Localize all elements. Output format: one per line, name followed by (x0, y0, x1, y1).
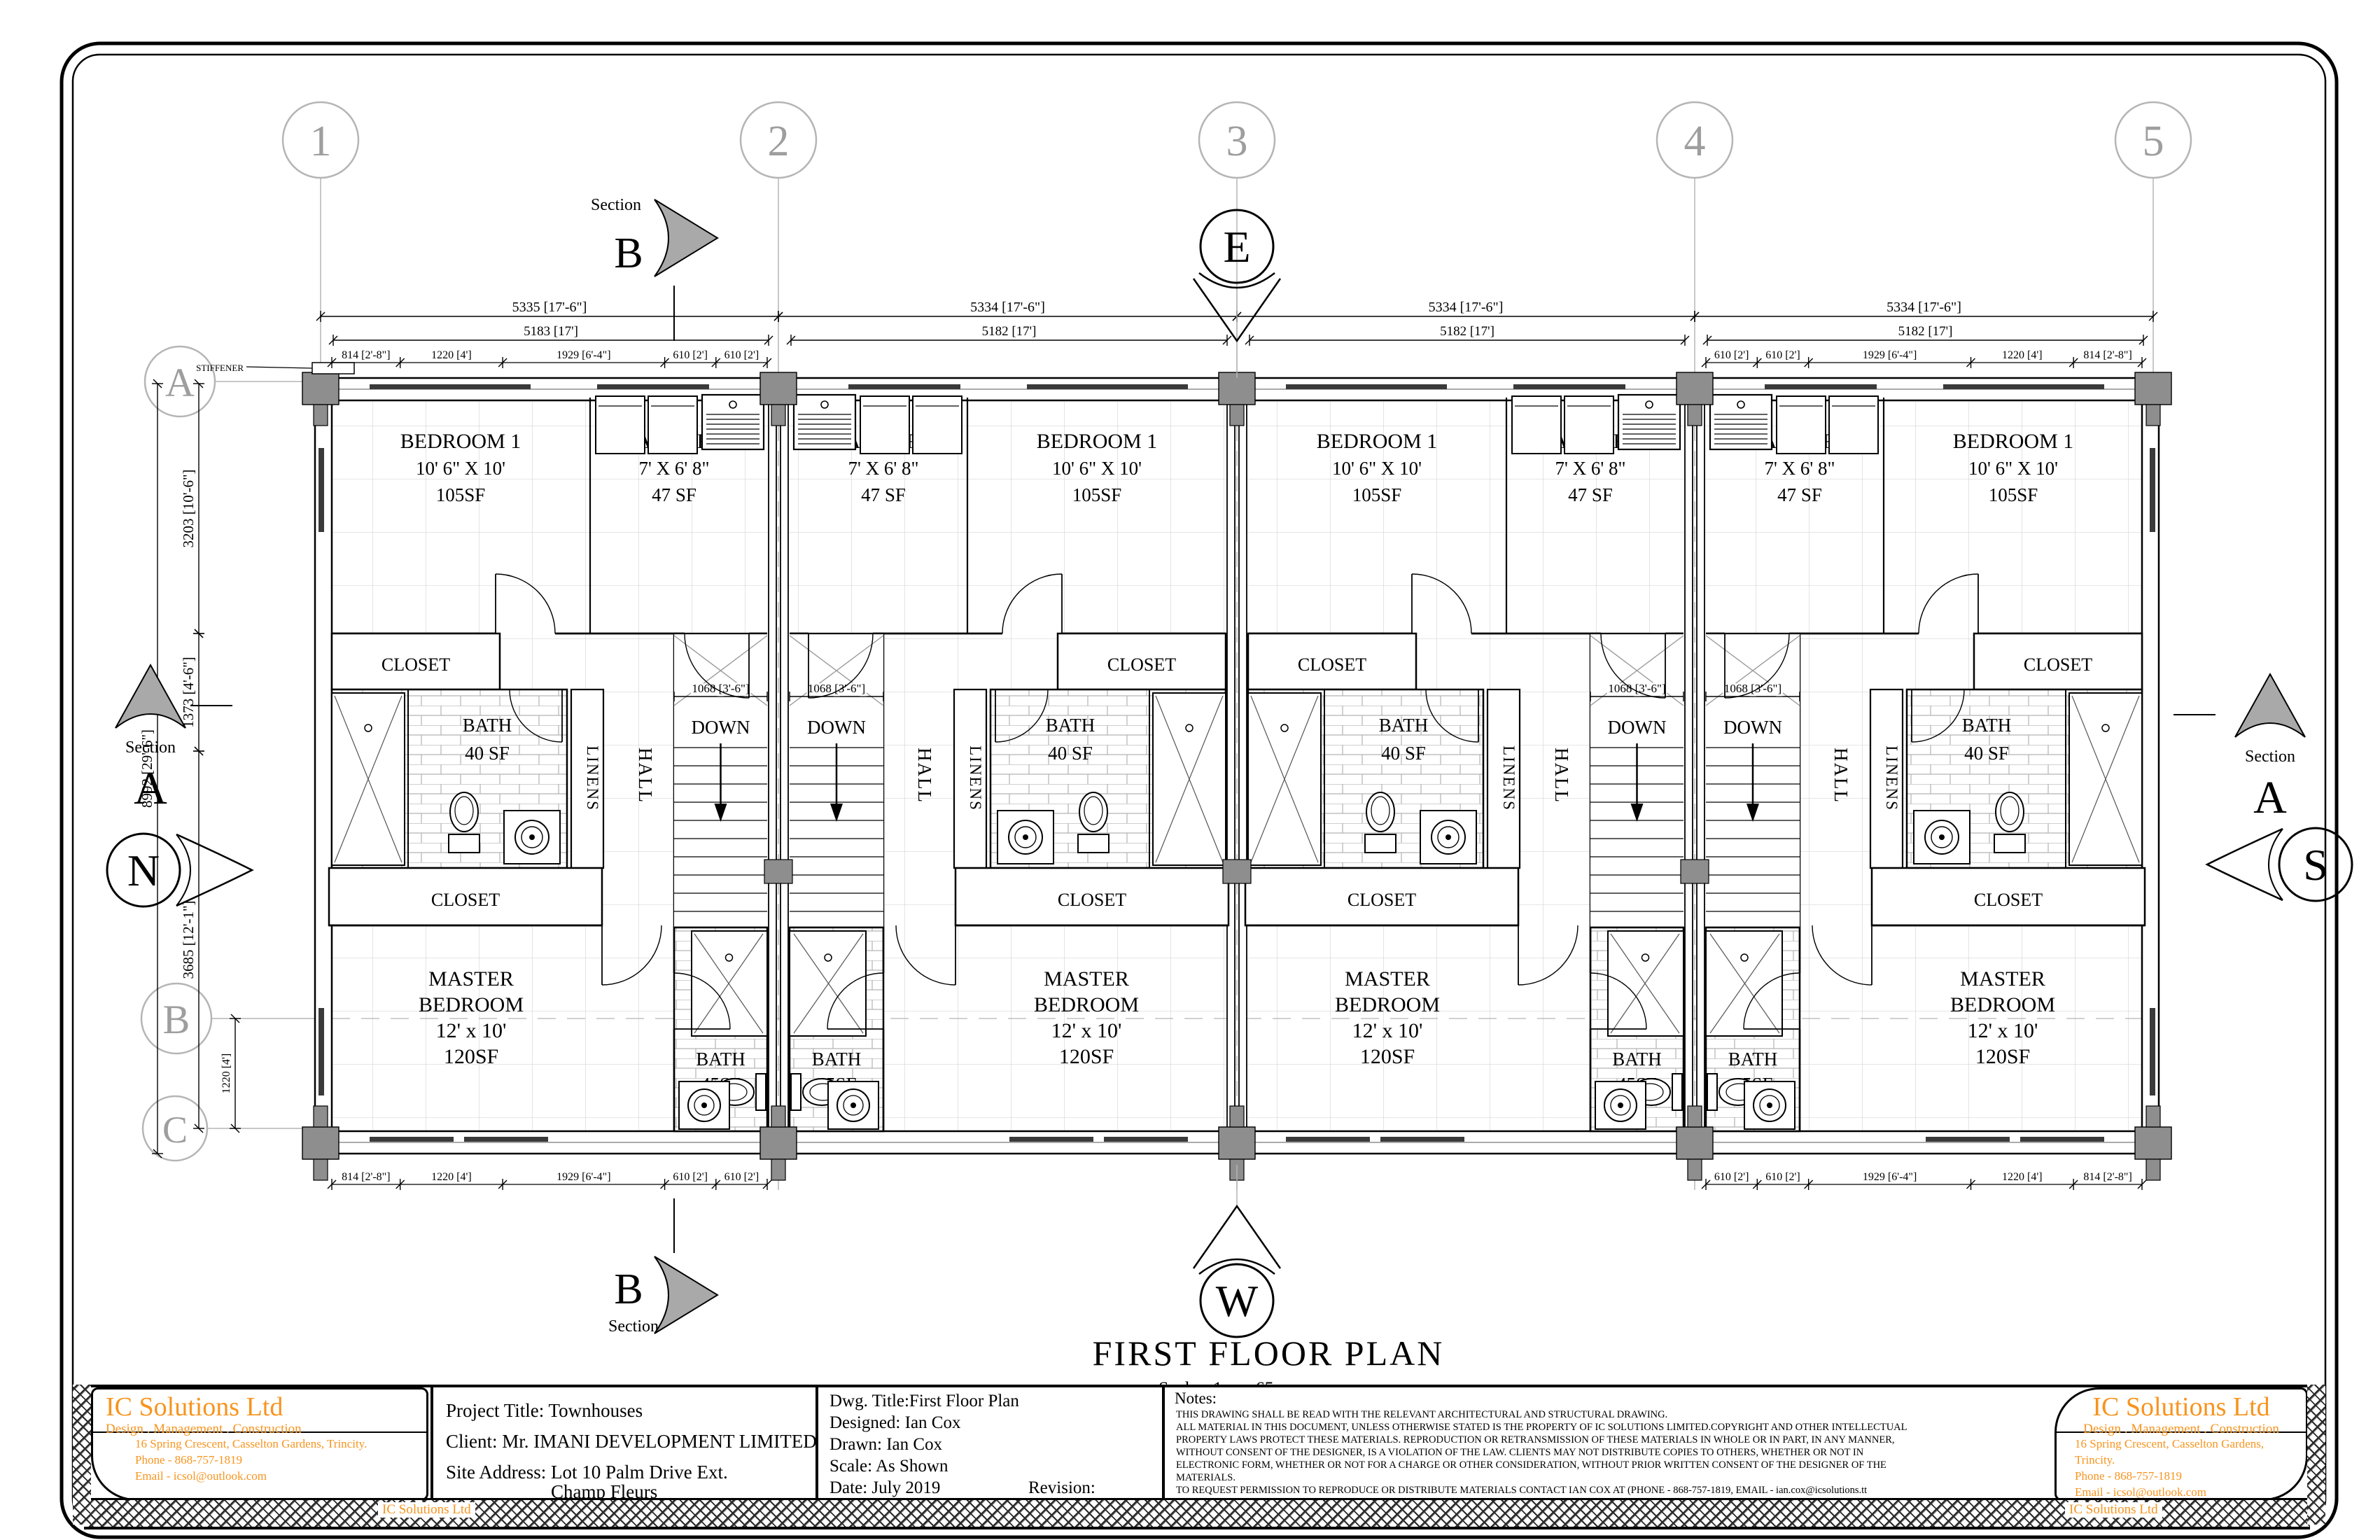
column-bottom-4-stub1 (1688, 1159, 1702, 1180)
column-top-3-stub0 (1230, 405, 1244, 426)
u4-toilet-bowl (1996, 792, 2024, 832)
u2-toilet-bowl (1079, 792, 1107, 832)
u3-closet-lower-label: CLOSET (1347, 890, 1416, 910)
column-top-5 (2135, 372, 2171, 405)
compass-east-letter: E (1223, 222, 1250, 272)
notes-heading: Notes: (1175, 1389, 1217, 1408)
u3-master-label-0: MASTER (1345, 967, 1430, 990)
u3-laundry-sink (1618, 395, 1680, 449)
u2-dryer (860, 396, 909, 454)
u1-closet-lower-label: CLOSET (431, 890, 500, 910)
section-b-bottom-label: Section (608, 1317, 659, 1336)
dim-seg-bottom-left-text0: 814 [2'-8"] (342, 1171, 390, 1183)
u1-bedroom1-label-1: 10' 6" X 10' (416, 458, 505, 479)
u2-bedroom1-label-0: BEDROOM 1 (1037, 430, 1158, 453)
u4-bath45-toilet-tank (1707, 1074, 1717, 1110)
u3-window-master-2 (1380, 1137, 1464, 1142)
column-top-4-stub0 (1688, 405, 1702, 426)
u2-sink-drain (1023, 834, 1028, 840)
dim-bay-overall-3-text: 5334 [17'-6"] (1429, 300, 1504, 315)
u1-bath45-toilet-tank (756, 1074, 766, 1110)
u4-bath45-sink-drain (1767, 1102, 1772, 1108)
compass-west-arc (1199, 1259, 1275, 1274)
dim-seg-bottom-left-text3: 610 [2'] (673, 1171, 708, 1183)
dim-bay-overall-2-text: 5334 [17'-6"] (970, 300, 1045, 315)
u1-bath45-label: BATH (696, 1049, 745, 1070)
section-a-right-letter: A (2253, 772, 2287, 823)
company-box-right: IC Solutions Ltd Design . Management . C… (2054, 1387, 2308, 1501)
project-title: Project Title: Townhouses (446, 1400, 643, 1422)
u4-linens-label: LINENS (1883, 745, 1900, 811)
u3-washer (1512, 396, 1561, 454)
u1-master-label-2: 12' x 10' (436, 1019, 507, 1042)
u3-window-master-1 (1286, 1137, 1370, 1142)
grid-bubble-label-1: 1 (310, 118, 332, 165)
notes-line-3: PROPERTY LAWS PROTECT THESE MATERIALS. R… (1176, 1434, 1895, 1447)
column-bottom-1-stub1 (314, 1159, 328, 1180)
u2-bath40-area: 40 SF (1048, 743, 1093, 764)
column-top-2-stub0 (771, 405, 785, 426)
compass-south-letter: S (2303, 840, 2328, 890)
u1-sink-drain (529, 834, 535, 840)
company-box-left: IC Solutions Ltd Design . Management . C… (91, 1387, 428, 1501)
section-a-right-label: Section (2245, 748, 2295, 766)
dwg-designed: Designed: Ian Cox (829, 1413, 960, 1433)
company-header-right: IC Solutions Ltd Design . Management . C… (2057, 1389, 2306, 1433)
dim-seg-top-right-text0: 610 [2'] (1714, 349, 1749, 361)
u2-laundry-label-2: 47 SF (861, 484, 906, 505)
company-contact-right: 16 Spring Crescent, Casselton Gardens, T… (2057, 1433, 2306, 1501)
u2-laundry-label-1: 7' X 6' 8" (848, 458, 919, 479)
hatch-band-right (2307, 1385, 2325, 1525)
column-mid-2 (764, 860, 792, 883)
u3-master-label-3: 120SF (1360, 1045, 1415, 1068)
dim-bay-inner-3-text: 5182 [17'] (1440, 324, 1494, 339)
u3-bedroom1-label-0: BEDROOM 1 (1317, 430, 1438, 453)
dim-bay-overall-1-text: 5335 [17'-6"] (512, 300, 587, 315)
compass-north-arrow-inner (176, 834, 190, 906)
u1-hall-label: HALL (635, 748, 656, 804)
grid-bubble-label-3: 3 (1226, 118, 1248, 165)
notes-line-7: TO REQUEST PERMISSION TO REPRODUCE OR DI… (1176, 1484, 1867, 1497)
u2-master-label-3: 120SF (1059, 1045, 1114, 1068)
u2-hall-label: HALL (914, 748, 935, 804)
dwg-revision: Revision: (1028, 1478, 1095, 1498)
u2-linens-label: LINENS (967, 745, 984, 811)
column-bottom-1 (302, 1127, 339, 1159)
u4-washer (1829, 396, 1878, 454)
u3-linens-label: LINENS (1500, 745, 1518, 811)
u2-bath45-sink-drain (850, 1102, 856, 1108)
u2-bath45-label: BATH (812, 1049, 862, 1070)
dim-bay-overall-4-text: 5334 [17'-6"] (1886, 300, 1961, 315)
u3-window-bedroom-top (1286, 384, 1447, 389)
u1-laundry-label-2: 47 SF (652, 484, 696, 505)
u3-stair-down-label: DOWN (1608, 717, 1667, 738)
u2-master-label-1: BEDROOM (1034, 993, 1139, 1016)
u4-closet-lower-label: CLOSET (1974, 890, 2043, 910)
hatch-band-left (73, 1385, 91, 1525)
u4-dryer (1777, 396, 1826, 454)
dim-left-bottom-text: 3685 [12'-1"] (180, 900, 197, 979)
u3-bath45-label: BATH (1612, 1049, 1662, 1070)
grid-bubble-label-B: B (163, 997, 190, 1042)
column-bottom-5-stub0 (2146, 1106, 2160, 1127)
project-client: Client: Mr. IMANI DEVELOPMENT LIMITED (446, 1431, 817, 1452)
column-bottom-4-stub0 (1688, 1106, 1702, 1127)
dim-seg-top-right-text1: 610 [2'] (1765, 349, 1800, 361)
u3-window-laundry-top (1513, 384, 1625, 389)
compass-south-arrow-inner (2269, 829, 2283, 900)
section-a-left-arrow (115, 665, 185, 728)
u4-hall-label: HALL (1830, 748, 1851, 804)
grid-bubble-label-C: C (162, 1109, 188, 1151)
u1-master-label-3: 120SF (444, 1045, 498, 1068)
u2-window-laundry-top (848, 384, 960, 389)
notes-cell: Notes: THIS DRAWING SHALL BE READ WITH T… (1162, 1387, 2054, 1501)
notes-line-2: ALL MATERIAL IN THIS DOCUMENT, UNLESS OT… (1176, 1421, 1907, 1434)
u2-master-label-2: 12' x 10' (1051, 1019, 1122, 1042)
drawing-sheet: 12345ABCCLOSETBATH40 SFLINENSHALL1068 [3… (0, 0, 2380, 1540)
u4-sink-drain (1939, 834, 1945, 840)
watermark-right: IC Solutions Ltd (2065, 1502, 2162, 1518)
u4-master-label-3: 120SF (1975, 1045, 2030, 1068)
column-top-1-stub0 (314, 405, 328, 426)
grid-bubble-label-4: 4 (1684, 118, 1706, 165)
section-b-bottom-letter: B (614, 1266, 643, 1313)
dim-left-bc-text: 1220 [4'] (220, 1053, 232, 1094)
u4-master-label-1: BEDROOM (1950, 993, 2055, 1016)
party-wall-right-4 (1697, 395, 1704, 1131)
column-bottom-4 (1676, 1127, 1713, 1159)
u4-closet-upper-label: CLOSET (2024, 654, 2092, 675)
company-email: Email - icsol@outlook.com (135, 1469, 426, 1485)
dim-left-top-text: 3203 [10'-6"] (180, 469, 197, 547)
u4-toilet-tank (1994, 834, 2025, 853)
project-cell: Project Title: Townhouses Client: Mr. IM… (430, 1387, 815, 1501)
dim-seg-bottom-left-text2: 1929 [6'-4"] (556, 1171, 610, 1183)
company-contact: 16 Spring Crescent, Casselton Gardens, T… (93, 1433, 426, 1485)
u1-laundry-sink (702, 395, 764, 449)
window-side-right-master (2150, 1008, 2155, 1095)
drawing-info-cell: Dwg. Title:First Floor Plan Designed: Ia… (815, 1387, 1162, 1501)
dim-seg-bottom-left-text1: 1220 [4'] (431, 1171, 472, 1183)
company-phone-right: Phone - 868-757-1819 (2075, 1469, 2306, 1485)
u4-laundry-label-2: 47 SF (1777, 484, 1822, 505)
u1-window-master-1 (370, 1137, 454, 1142)
company-phone: Phone - 868-757-1819 (135, 1452, 426, 1469)
column-top-2 (760, 372, 797, 405)
title-block: IC Solutions Ltd Design . Management . C… (84, 1385, 2310, 1501)
project-site-line1: Site Address: Lot 10 Palm Drive Ext. (446, 1462, 728, 1483)
u2-window-master-2 (1009, 1137, 1093, 1142)
party-wall-right-2 (780, 395, 788, 1131)
u3-bath40-area: 40 SF (1381, 743, 1426, 764)
u4-bath40-label: BATH (1962, 715, 2012, 736)
column-bottom-5-stub1 (2146, 1159, 2160, 1180)
plan-title: FIRST FLOOR PLAN (1093, 1333, 1445, 1373)
dwg-drawn: Drawn: Ian Cox (829, 1435, 942, 1455)
dim-bay-inner-4-text: 5182 [17'] (1898, 324, 1953, 339)
section-b-top-label: Section (591, 196, 641, 214)
u4-bath40-area: 40 SF (1964, 743, 2009, 764)
u4-window-master-1 (2020, 1137, 2104, 1142)
u4-bath45-label: BATH (1728, 1049, 1778, 1070)
notes-line-5: ELECTRONIC FORM, WHETHER OR NOT FOR A CH… (1176, 1459, 1886, 1472)
u1-window-laundry-top (597, 384, 709, 389)
dwg-date: Date: July 2019 (829, 1478, 940, 1498)
section-b-bottom-arrow (654, 1256, 717, 1333)
u4-bedroom1-label-2: 105SF (1989, 484, 2038, 505)
stiffener-leader (246, 367, 312, 368)
compass-south-arrow (2207, 829, 2283, 900)
u4-bedroom1-label-0: BEDROOM 1 (1953, 430, 2074, 453)
section-a-right-arrow (2235, 674, 2305, 737)
dim-seg-top-right-text4: 814 [2'-8"] (2083, 349, 2131, 361)
u4-window-laundry-top (1765, 384, 1877, 389)
column-bottom-2-stub1 (771, 1159, 785, 1180)
dim-seg-bottom-right-text4: 814 [2'-8"] (2083, 1171, 2131, 1183)
dim-seg-top-left-text3: 610 [2'] (673, 349, 708, 361)
notes-line-4: WITHOUT CONSENT OF THE DESIGNER, IS A VI… (1176, 1446, 1863, 1459)
u1-washer (596, 396, 645, 454)
column-top-4 (1676, 372, 1713, 405)
dim-seg-top-left-text1: 1220 [4'] (431, 349, 472, 361)
company-name: IC Solutions Ltd (106, 1394, 426, 1422)
u3-bath45-sink-drain (1618, 1102, 1623, 1108)
dim-seg-top-left-text0: 814 [2'-8"] (342, 349, 390, 361)
watermark-left: IC Solutions Ltd (378, 1502, 475, 1518)
column-bottom-3 (1219, 1127, 1255, 1159)
u1-toilet-bowl (450, 792, 478, 832)
compass-west-letter: W (1216, 1276, 1259, 1326)
column-top-1 (302, 372, 339, 405)
u3-hall-label: HALL (1551, 748, 1572, 804)
section-b-top-letter: B (614, 230, 643, 277)
company-header: IC Solutions Ltd Design . Management . C… (93, 1389, 426, 1433)
u4-laundry-sink (1710, 395, 1772, 449)
u2-bath45-toilet-tank (791, 1074, 801, 1110)
party-wall-right-3 (1239, 395, 1247, 1131)
dwg-scale: Scale: As Shown (829, 1457, 948, 1476)
column-mid-3 (1223, 860, 1251, 883)
grid-bubble-label-2: 2 (768, 118, 790, 165)
u3-toilet-bowl (1366, 792, 1394, 832)
u4-stair-dim-text: 1068 [3'-6"] (1724, 682, 1781, 695)
u3-toilet-tank (1365, 834, 1396, 853)
u3-master-label-1: BEDROOM (1335, 993, 1440, 1016)
notes-line-6: MATERIALS. (1176, 1471, 1235, 1485)
u1-closet-upper-label: CLOSET (381, 654, 450, 675)
u4-bedroom1-label-1: 10' 6" X 10' (1968, 458, 2058, 479)
column-bottom-3-stub0 (1230, 1106, 1244, 1127)
company-address-right: 16 Spring Crescent, Casselton Gardens, T… (2075, 1436, 2306, 1469)
u1-bedroom1-label-0: BEDROOM 1 (400, 430, 521, 453)
u3-stair-dim-text: 1068 [3'-6"] (1608, 682, 1665, 695)
u2-laundry-sink (794, 395, 855, 449)
u3-dryer (1564, 396, 1613, 454)
u1-window-master-2 (464, 1137, 548, 1142)
dim-seg-bottom-left-text4: 610 [2'] (724, 1171, 759, 1183)
dim-seg-bottom-right-text3: 1220 [4'] (2002, 1171, 2043, 1183)
u4-stair-down-label: DOWN (1723, 717, 1782, 738)
section-b-top-arrow (654, 199, 717, 276)
column-top-5-stub0 (2146, 405, 2160, 426)
u2-closet-lower-label: CLOSET (1058, 890, 1126, 910)
grid-bubble-label-5: 5 (2143, 118, 2164, 165)
dim-left-mid-text: 1373 [4'-6"] (180, 657, 197, 728)
stiffener-plate (312, 363, 354, 374)
section-a-left-label: Section (125, 738, 176, 757)
dim-seg-top-left-text2: 1929 [6'-4"] (556, 349, 610, 361)
dim-seg-bottom-right-text2: 1929 [6'-4"] (1863, 1171, 1917, 1183)
party-wall-left-3 (1227, 395, 1235, 1131)
u3-bedroom1-label-2: 105SF (1352, 484, 1402, 505)
company-address: 16 Spring Crescent, Casselton Gardens, T… (135, 1436, 426, 1452)
u4-master-label-2: 12' x 10' (1968, 1019, 2038, 1042)
dim-seg-top-right-text3: 1220 [4'] (2002, 349, 2043, 361)
party-wall-left-4 (1685, 395, 1693, 1131)
u1-laundry-label-1: 7' X 6' 8" (639, 458, 710, 479)
u2-closet-upper-label: CLOSET (1107, 654, 1176, 675)
u2-toilet-tank (1078, 834, 1109, 853)
u4-window-bedroom-top (1943, 384, 2104, 389)
grid-bubble-label-A: A (165, 360, 195, 405)
section-a-left-letter: A (134, 763, 167, 814)
u1-bath45-sink-drain (701, 1102, 707, 1108)
company-tagline-right: Design . Management . Construction (2057, 1422, 2306, 1437)
u4-window-master-2 (1926, 1137, 2010, 1142)
u2-window-master-1 (1104, 1137, 1188, 1142)
dim-seg-top-right-text2: 1929 [6'-4"] (1863, 349, 1917, 361)
dwg-title: Dwg. Title:First Floor Plan (829, 1392, 1019, 1411)
u3-closet-upper-label: CLOSET (1298, 654, 1366, 675)
u1-master-label-1: BEDROOM (419, 993, 524, 1016)
dim-bay-inner-2-text: 5182 [17'] (982, 324, 1037, 339)
party-wall-left-2 (769, 395, 776, 1131)
u1-master-label-0: MASTER (428, 967, 514, 990)
u3-laundry-label-2: 47 SF (1568, 484, 1613, 505)
u2-bedroom1-label-2: 105SF (1072, 484, 1122, 505)
column-bottom-2-stub0 (771, 1106, 785, 1127)
u1-window-bedroom-top (370, 384, 531, 389)
u4-laundry-label-1: 7' X 6' 8" (1765, 458, 1835, 479)
u1-stair-down-label: DOWN (692, 717, 750, 738)
company-name-right: IC Solutions Ltd (2057, 1394, 2306, 1422)
u1-dryer (648, 396, 697, 454)
column-bottom-1-stub0 (314, 1106, 328, 1127)
dim-bay-inner-1-text: 5183 [17'] (524, 324, 578, 339)
notes-line-1: THIS DRAWING SHALL BE READ WITH THE RELE… (1176, 1408, 1667, 1422)
dim-seg-bottom-right-text0: 610 [2'] (1714, 1171, 1749, 1183)
u1-bath40-area: 40 SF (465, 743, 510, 764)
u1-bath40-label: BATH (463, 715, 512, 736)
dim-seg-bottom-right-text1: 610 [2'] (1765, 1171, 1800, 1183)
u4-master-label-0: MASTER (1960, 967, 2045, 990)
u3-bath40-label: BATH (1379, 715, 1429, 736)
u1-bedroom1-label-2: 105SF (436, 484, 486, 505)
u3-laundry-label-1: 7' X 6' 8" (1555, 458, 1626, 479)
column-mid-4 (1681, 860, 1709, 883)
u3-bedroom1-label-1: 10' 6" X 10' (1332, 458, 1422, 479)
u2-stair-dim-text: 1068 [3'-6"] (808, 682, 865, 695)
compass-north-letter: N (127, 846, 160, 895)
u2-stair-down-label: DOWN (807, 717, 866, 738)
window-side-left-bedroom (318, 448, 324, 532)
window-side-right-bedroom (2150, 448, 2155, 532)
u3-bath45-toilet-tank (1672, 1074, 1682, 1110)
u2-window-bedroom-top (1027, 384, 1188, 389)
u1-toilet-tank (449, 834, 479, 853)
u2-bath40-label: BATH (1046, 715, 1095, 736)
compass-north-arrow (176, 834, 252, 906)
floor-plan-canvas: 12345ABCCLOSETBATH40 SFLINENSHALL1068 [3… (0, 0, 2380, 1540)
u1-linens-label: LINENS (584, 745, 601, 811)
u2-master-label-0: MASTER (1044, 967, 1129, 990)
u2-bedroom1-label-1: 10' 6" X 10' (1052, 458, 1142, 479)
window-side-left-master (318, 1008, 324, 1095)
u3-sink-drain (1445, 834, 1451, 840)
column-bottom-2 (760, 1127, 797, 1159)
column-bottom-5 (2135, 1127, 2171, 1159)
u2-washer (913, 396, 962, 454)
u3-master-label-2: 12' x 10' (1352, 1019, 1423, 1042)
stiffener-label: STIFFENER (196, 363, 244, 373)
u1-stair-dim-text: 1068 [3'-6"] (692, 682, 749, 695)
dim-seg-top-left-text4: 610 [2'] (724, 349, 759, 361)
